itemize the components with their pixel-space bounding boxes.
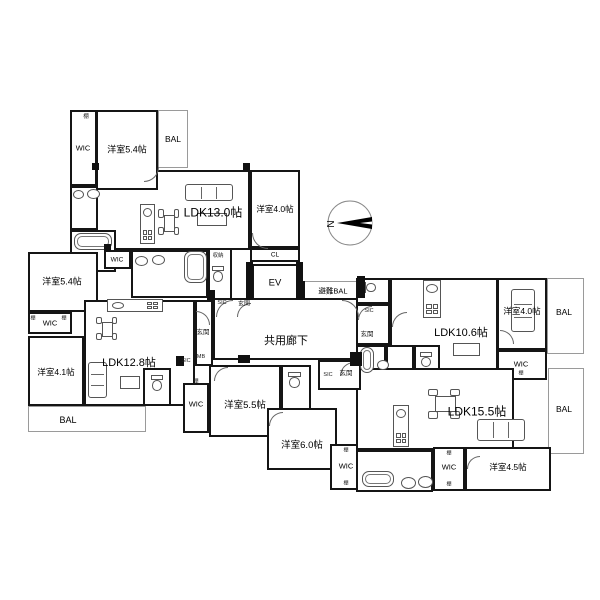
stove-burner — [396, 439, 401, 444]
kitchen-sink-icon — [426, 284, 438, 293]
wall-column — [298, 281, 305, 300]
small-label: 棚 — [343, 480, 348, 487]
sink-icon — [418, 476, 433, 488]
bathtub-inner — [365, 474, 391, 484]
table-icon — [453, 343, 480, 356]
small-label: 棚 — [518, 370, 523, 377]
compass-icon: N — [324, 197, 376, 249]
wall-column — [104, 244, 111, 251]
kitchen-sink-icon — [396, 409, 406, 418]
stove-icon — [147, 302, 158, 309]
room-label-b-y54: 洋室5.4帖 — [42, 275, 82, 288]
toilet-bowl — [152, 380, 162, 391]
room-label-b-wic2: WIC — [43, 319, 58, 328]
small-label: 棚 — [61, 315, 66, 322]
room-corridor — [213, 298, 361, 360]
bathtub-icon — [360, 347, 374, 373]
stove-burner — [148, 236, 152, 241]
bathtub-icon — [184, 251, 207, 283]
room-label-e-bal: BAL — [556, 404, 572, 414]
small-label: 棚 — [83, 112, 89, 120]
small-label: MB — [197, 354, 205, 360]
room-label-b-bal: BAL — [59, 415, 76, 425]
small-label: 棚 — [343, 447, 348, 454]
stove-burner — [396, 433, 401, 438]
table-icon — [120, 376, 140, 389]
toilet-bowl — [366, 283, 375, 292]
kitchen-sink-icon — [112, 302, 124, 309]
room-label-a-cl: CL — [271, 252, 279, 259]
stove-burner — [426, 310, 432, 315]
room-label-e-ldk: LDK15.5帖 — [448, 403, 507, 420]
room-label-e-y45: 洋室4.5帖 — [489, 461, 526, 473]
toilet-icon — [420, 352, 432, 367]
stove-burner — [143, 236, 147, 241]
stove-burner — [433, 310, 439, 315]
toilet-icon — [151, 375, 163, 391]
wall-column — [350, 352, 362, 366]
chair-icon — [174, 209, 179, 217]
room-label-b-ldk: LDK12.8帖 — [102, 354, 156, 370]
room-label-c-y55: 洋室5.5帖 — [224, 397, 266, 411]
sofa-cushion-line — [91, 374, 105, 375]
room-label-c-wic: WIC — [189, 400, 204, 409]
room-label-b-wic1: WIC — [111, 257, 124, 264]
small-label: SIC — [364, 308, 373, 314]
stove-burner — [153, 306, 158, 309]
stove-burner — [147, 306, 152, 309]
room-label-d-y40: 洋室4.0帖 — [503, 305, 540, 317]
stove-burner — [433, 304, 439, 309]
bathtub-inner — [363, 350, 371, 370]
small-label: 棚 — [30, 315, 35, 322]
chair-icon — [96, 317, 101, 324]
kitchen-counter — [393, 405, 409, 447]
toilet-bowl — [213, 271, 223, 282]
sofa-cushion-line — [514, 317, 532, 318]
room-label-elevator: EV — [269, 278, 282, 289]
stove-burner — [148, 230, 152, 235]
sofa-cushion-line — [91, 385, 105, 386]
stove-icon — [143, 230, 152, 240]
sofa-cushion-line — [493, 422, 494, 438]
small-label: SIC — [323, 372, 332, 378]
toilet-tank — [212, 266, 224, 271]
small-label: SIC — [181, 358, 190, 364]
stove-burner — [426, 304, 432, 309]
dining-table-icon — [102, 322, 113, 337]
room-label-d-ldk: LDK10.6帖 — [434, 324, 488, 340]
stove-icon — [426, 304, 438, 314]
sink-icon — [87, 189, 100, 199]
chair-icon — [96, 333, 101, 340]
stove-burner — [402, 439, 407, 444]
small-label: 玄関 — [361, 328, 374, 338]
small-label: 棚 — [446, 481, 451, 488]
room-label-a-ldk: LDK13.0帖 — [184, 204, 243, 221]
toilet-icon — [212, 266, 224, 282]
wall-column — [357, 276, 365, 298]
room-label-d-wic: WIC — [514, 360, 529, 369]
stove-burner — [153, 302, 158, 305]
toilet-bowl — [421, 357, 431, 367]
wall-column — [243, 163, 250, 170]
wall-column — [92, 163, 99, 170]
chair-icon — [428, 411, 438, 419]
toilet-tank — [151, 375, 163, 380]
room-label-d-bal: BAL — [556, 307, 572, 317]
room-label-a-y40: 洋室4.0帖 — [256, 203, 293, 215]
bathtub-icon — [362, 471, 394, 487]
sink-icon — [377, 360, 389, 370]
room-label-a-wic: WIC — [76, 144, 91, 153]
stove-icon — [396, 433, 406, 443]
floor-plan: N LDK13.0帖洋室5.4帖WICBAL洋室4.0帖CLEV避難BAL共用廊… — [0, 0, 600, 600]
stove-burner — [147, 302, 152, 305]
stove-burner — [402, 433, 407, 438]
sofa-cushion-line — [201, 187, 202, 199]
wall-column — [238, 355, 250, 363]
room-label-c-y60: 洋室6.0帖 — [281, 437, 323, 451]
room-label-a-bal: BAL — [165, 134, 181, 144]
room-label-b-y41: 洋室4.1帖 — [37, 366, 74, 378]
room-b-bal — [28, 406, 146, 432]
dining-set — [158, 206, 180, 240]
sink-icon — [401, 477, 416, 489]
small-label: 玄関 — [238, 299, 250, 308]
toilet-tank — [288, 372, 301, 377]
toilet-bowl — [289, 377, 299, 388]
small-label: SIC — [217, 300, 226, 306]
kitchen-counter — [107, 299, 163, 312]
chair-icon — [174, 227, 179, 235]
small-label: 棚 — [446, 450, 451, 457]
chair-icon — [112, 317, 117, 324]
kitchen-counter — [423, 280, 441, 318]
kitchen-counter — [140, 204, 155, 244]
dining-table-icon — [164, 215, 175, 232]
sink-icon — [135, 256, 148, 266]
small-label: 収納 — [212, 251, 223, 259]
chair-icon — [158, 227, 163, 235]
room-label-c-wic2: WIC — [339, 462, 354, 471]
room-label-a-y54: 洋室5.4帖 — [107, 143, 147, 156]
room-label-corridor: 共用廊下 — [264, 332, 308, 348]
room-label-e-wic: WIC — [442, 463, 457, 472]
chair-icon — [428, 389, 438, 397]
room-label-hinan-bal: 避難BAL — [318, 286, 347, 297]
chair-icon — [158, 209, 163, 217]
dining-set — [96, 314, 118, 344]
sofa-cushion-line — [508, 422, 509, 438]
kitchen-sink-icon — [143, 208, 152, 217]
toilet-tank — [420, 352, 432, 357]
toilet-icon — [288, 372, 301, 388]
sink-icon — [73, 190, 84, 199]
small-label: 玄関 — [340, 367, 353, 377]
sofa-icon — [477, 419, 525, 441]
small-label: 棚 — [193, 378, 198, 385]
stove-burner — [143, 230, 147, 235]
compass-north-label: N — [326, 220, 337, 227]
chair-icon — [450, 389, 460, 397]
sink-icon — [152, 255, 165, 265]
chair-icon — [112, 333, 117, 340]
sofa-icon — [185, 184, 233, 201]
bathtub-inner — [187, 254, 204, 280]
wall-column — [207, 290, 215, 300]
sofa-cushion-line — [216, 187, 217, 199]
small-label: 玄関 — [197, 326, 210, 336]
wall-column — [246, 262, 253, 300]
